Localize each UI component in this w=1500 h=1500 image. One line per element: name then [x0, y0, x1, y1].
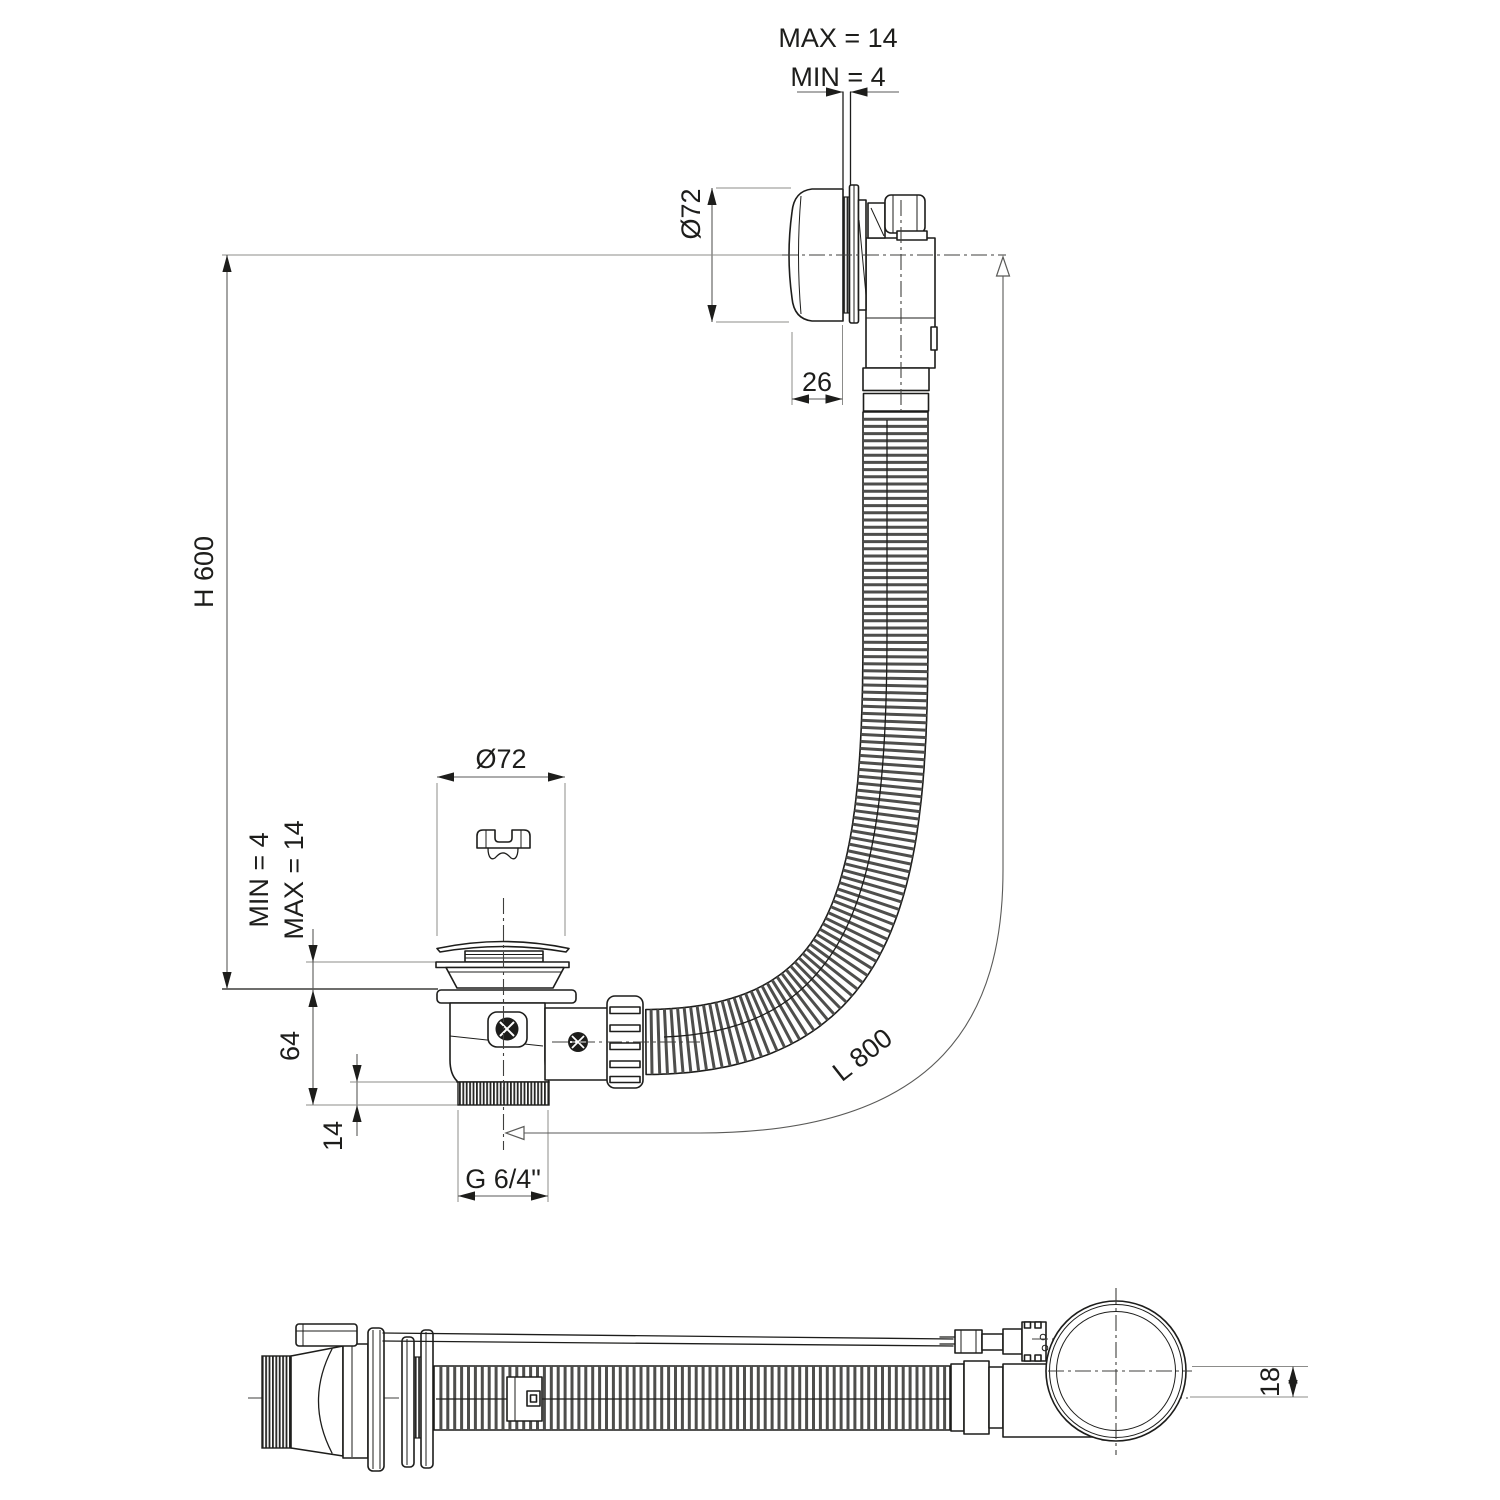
label-bottom-max: MAX = 14	[279, 820, 309, 939]
corrugated-overflow-hose	[646, 412, 928, 1075]
label-overall-height: H 600	[189, 536, 219, 608]
label-body-height: 64	[275, 1031, 305, 1061]
waste-drain-assembly	[436, 830, 643, 1105]
label-wall-max: MAX = 14	[778, 23, 897, 53]
label-waste-diameter: Ø72	[475, 744, 526, 774]
drain-thread-side	[262, 1356, 291, 1448]
label-housing-height: 18	[1255, 1367, 1285, 1397]
dimension-arrowheads	[222, 87, 1297, 1397]
mounting-flange-disc	[368, 1328, 384, 1471]
dimension-terminator-top	[997, 257, 1010, 276]
waste-body-side	[262, 1324, 433, 1471]
bottom-assembled-view	[248, 1288, 1192, 1471]
waste-top-flange	[437, 968, 576, 1004]
tub-wall-section	[843, 92, 851, 188]
hose-socket	[863, 368, 929, 411]
hose-end-fitting	[964, 1361, 989, 1434]
label-overflow-depth: 26	[802, 367, 832, 397]
waste-cone	[291, 1346, 343, 1456]
cable-sleeve	[955, 1330, 982, 1353]
plug-washer	[436, 962, 569, 968]
label-overflow-diameter: Ø72	[676, 188, 706, 239]
plug-removal-key	[477, 830, 530, 859]
backnut-disc	[421, 1330, 433, 1468]
dimension-labels: MAX = 14 MIN = 4 Ø72 26 H 600 Ø72 MIN = …	[189, 23, 1285, 1397]
technical-drawing-page: MAX = 14 MIN = 4 Ø72 26 H 600 Ø72 MIN = …	[0, 0, 1500, 1500]
key-inside-hose	[507, 1377, 542, 1421]
washer-disc	[402, 1337, 414, 1467]
bowden-cable	[383, 1322, 1128, 1361]
label-thread-length: 14	[318, 1121, 348, 1151]
label-thread-size: G 6/4"	[465, 1164, 541, 1194]
overflow-housing-bottom-view	[951, 1288, 1192, 1455]
bath-waste-overflow-drawing: MAX = 14 MIN = 4 Ø72 26 H 600 Ø72 MIN = …	[0, 0, 1500, 1500]
dimension-extension-lines	[222, 92, 1308, 1397]
label-hose-length: L 800	[827, 1023, 898, 1088]
overflow-inlet-port	[296, 1324, 357, 1346]
label-wall-min: MIN = 4	[790, 62, 885, 92]
cable-gland	[868, 195, 927, 240]
overflow-mounting-flange	[843, 185, 866, 323]
dimension-terminator-left	[506, 1127, 524, 1140]
main-side-view	[436, 92, 1010, 1150]
label-bottom-min: MIN = 4	[244, 832, 274, 927]
